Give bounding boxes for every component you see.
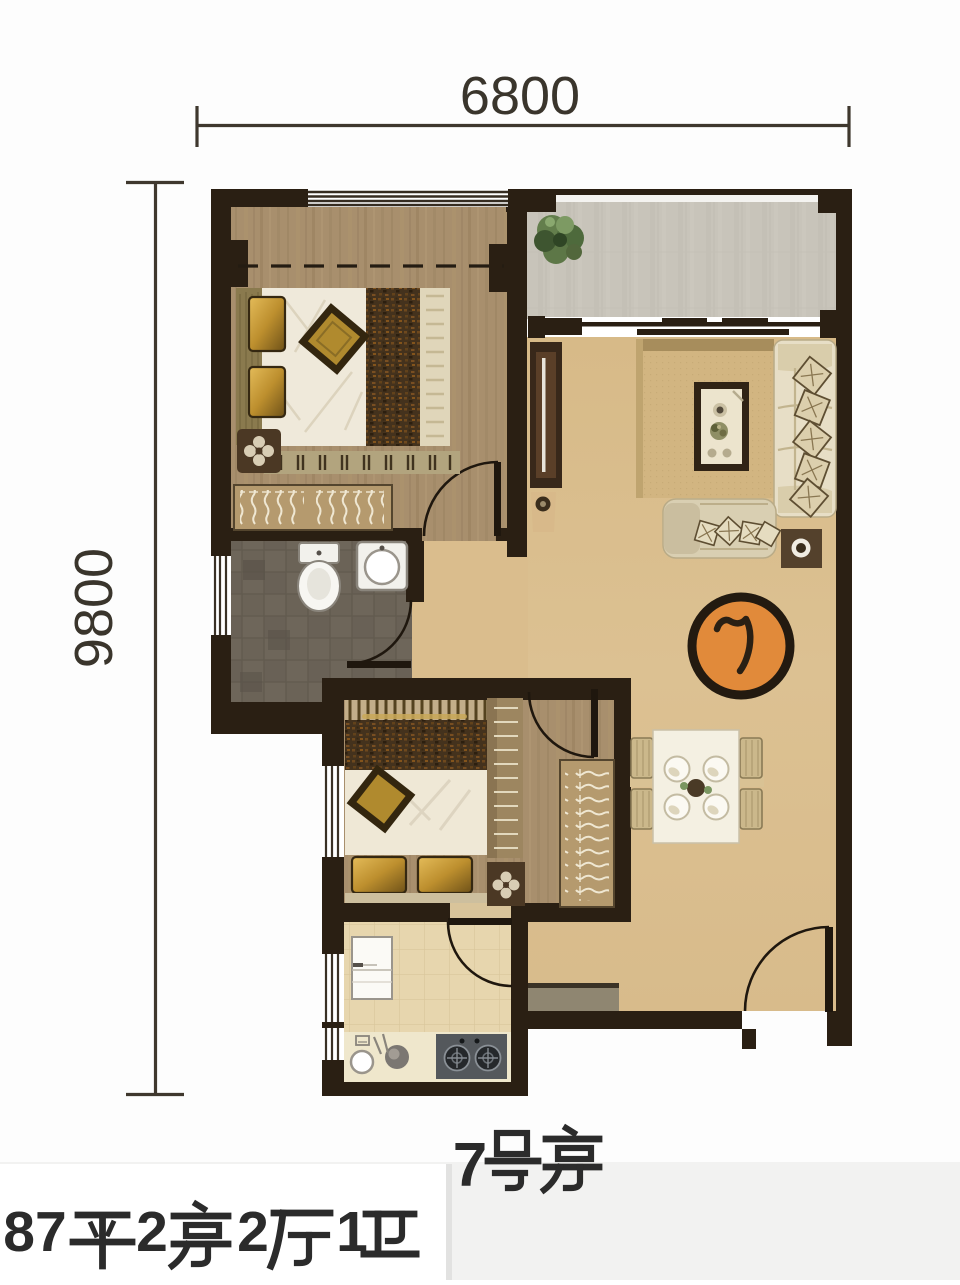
svg-text:9800: 9800 (64, 548, 124, 668)
svg-text:7: 7 (453, 1131, 487, 1200)
svg-text:6800: 6800 (460, 66, 580, 126)
svg-text:87: 87 (3, 1200, 66, 1264)
svg-text:2: 2 (237, 1200, 269, 1264)
svg-text:2: 2 (136, 1200, 168, 1264)
